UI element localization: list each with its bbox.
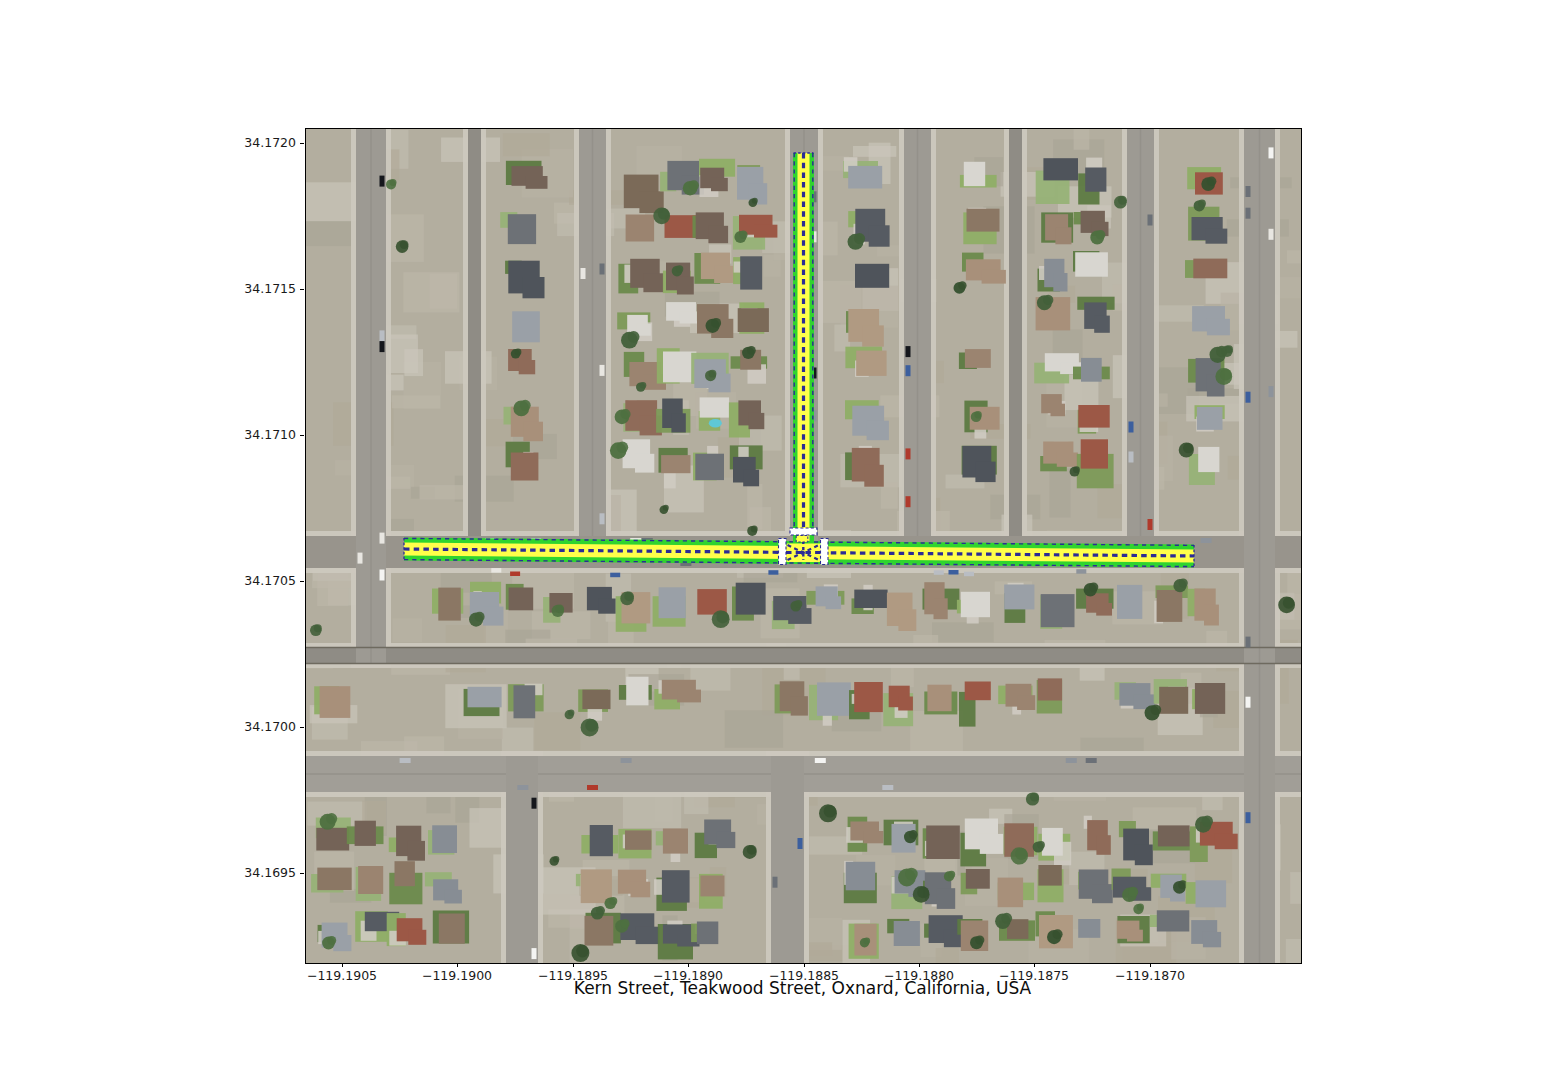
x-tick-mark — [342, 963, 343, 967]
x-tick-mark — [688, 963, 689, 967]
x-tick-mark — [804, 963, 805, 967]
x-tick-mark — [457, 963, 458, 967]
y-tick-mark — [300, 289, 304, 290]
y-tick-mark — [300, 143, 304, 144]
x-tick-mark — [1150, 963, 1151, 967]
y-tick-label: 34.1720 — [214, 137, 296, 150]
matplotlib-figure: −119.1905−119.1900−119.1895−119.1890−119… — [0, 0, 1566, 1080]
y-tick-mark — [300, 581, 304, 582]
x-tick-mark — [1034, 963, 1035, 967]
y-tick-label: 34.1705 — [214, 575, 296, 588]
y-tick-label: 34.1700 — [214, 721, 296, 734]
map-plot-area — [305, 128, 1302, 964]
x-axis-label: Kern Street, Teakwood Street, Oxnard, Ca… — [305, 978, 1300, 998]
y-tick-label: 34.1715 — [214, 283, 296, 296]
x-tick-mark — [919, 963, 920, 967]
y-tick-mark — [300, 873, 304, 874]
y-tick-mark — [300, 727, 304, 728]
aerial-imagery — [306, 129, 1301, 963]
y-tick-label: 34.1710 — [214, 429, 296, 442]
y-tick-mark — [300, 435, 304, 436]
y-tick-label: 34.1695 — [214, 867, 296, 880]
x-tick-mark — [573, 963, 574, 967]
